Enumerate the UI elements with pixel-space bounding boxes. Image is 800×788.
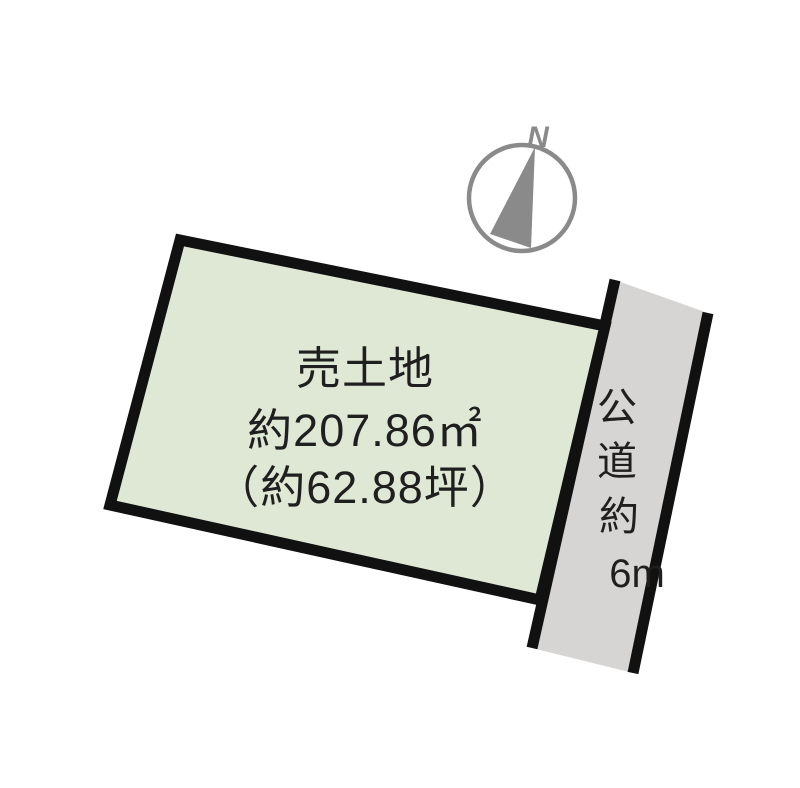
plot-title: 売土地 [296, 343, 434, 394]
road-label-width: 6m [609, 552, 665, 596]
road-label-char: 道 [597, 440, 637, 484]
plot-area-sqm: 約207.86㎡ [247, 405, 483, 456]
plot-area-tsubo: （約62.88坪） [214, 462, 516, 513]
compass-north-label: N [527, 121, 550, 154]
road-label-char: 約 [599, 495, 639, 539]
road-label-char: 公 [597, 386, 637, 430]
land-plot-diagram: 売土地 約207.86㎡ （約62.88坪） 公 道 約 6m N [0, 0, 800, 788]
